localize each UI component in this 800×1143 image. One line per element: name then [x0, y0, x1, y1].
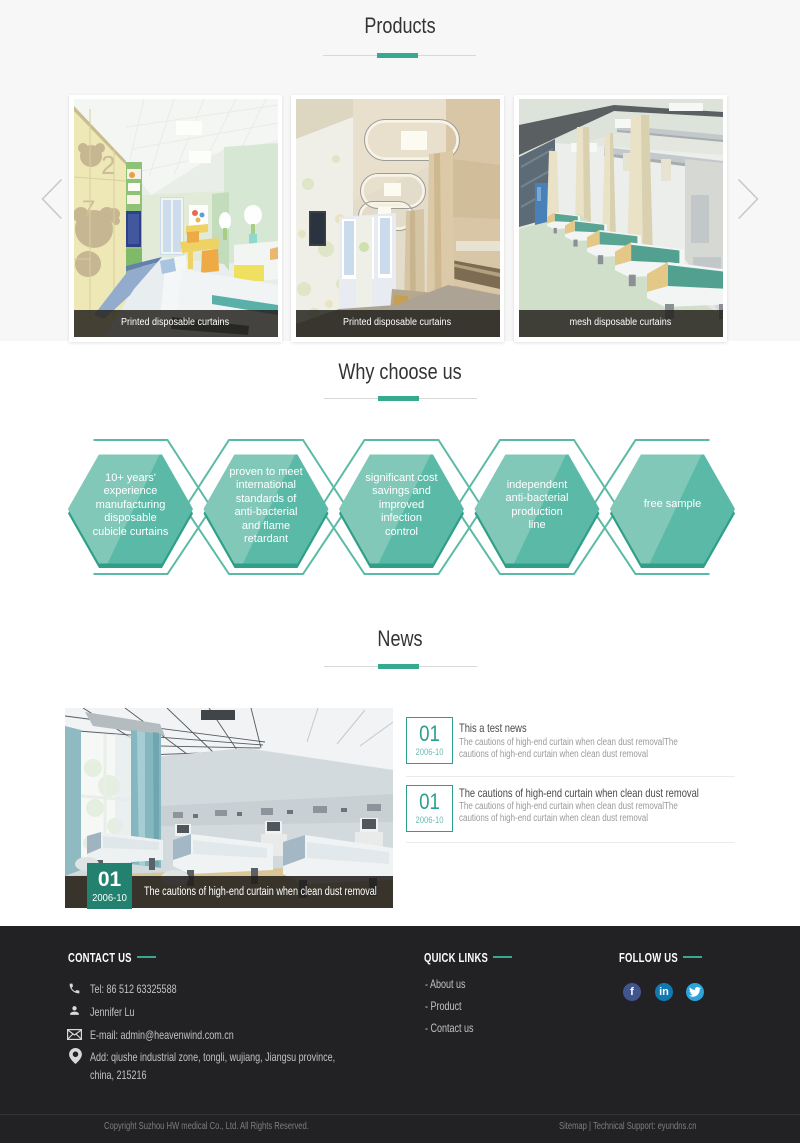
svg-text:2: 2: [101, 150, 115, 180]
svg-text:7: 7: [82, 196, 95, 223]
